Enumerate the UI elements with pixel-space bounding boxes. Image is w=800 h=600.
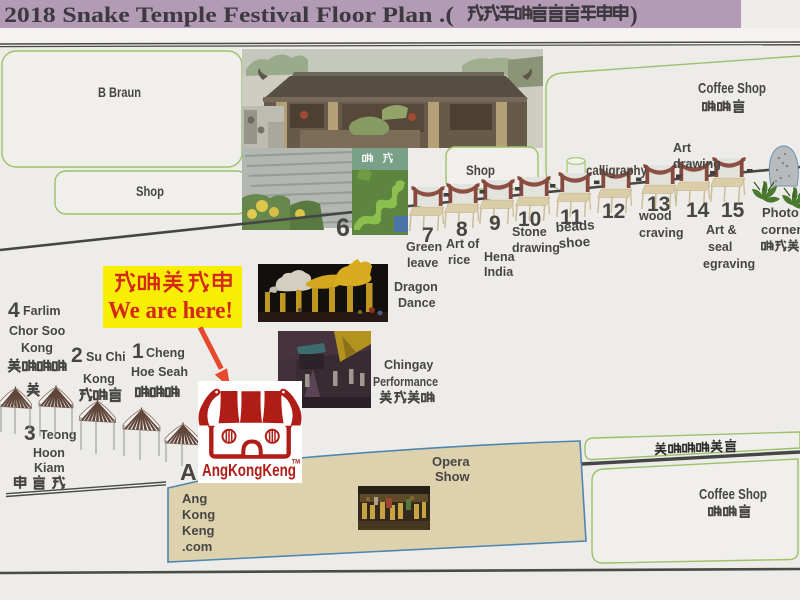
svg-text:Dance: Dance [398,296,436,310]
svg-text:Kong: Kong [83,372,115,386]
svg-text:.com: .com [182,539,212,554]
svg-text:Su Chi: Su Chi [86,350,126,364]
svg-text:TM: TM [292,460,301,466]
svg-text:2: 2 [71,344,83,367]
svg-text:Hena: Hena [484,250,516,264]
svg-text:Shop: Shop [136,184,164,199]
svg-text:Performance: Performance [373,375,438,389]
svg-text:Keng: Keng [182,523,215,538]
svg-text:B Braun: B Braun [98,85,141,100]
svg-text:corner: corner [761,222,800,237]
svg-text:Shop: Shop [466,163,495,178]
svg-text:12: 12 [602,200,625,223]
svg-text:Cheng: Cheng [146,346,185,360]
svg-text:Ang: Ang [182,491,207,506]
svg-text:Show: Show [435,469,471,484]
svg-text:Stone: Stone [512,225,547,239]
svg-text:drawing: drawing [673,157,721,171]
svg-text:Hoon: Hoon [33,446,65,460]
svg-text:Dragon: Dragon [394,280,438,294]
svg-text:seal: seal [708,240,732,254]
svg-text:AngKongKeng: AngKongKeng [202,460,296,480]
svg-text:9: 9 [489,212,501,235]
svg-text:4: 4 [8,299,20,322]
svg-text:beads: beads [555,217,595,235]
svg-text:Green: Green [406,240,442,254]
svg-text:Coffee Shop: Coffee Shop [699,486,767,503]
svg-text:Art: Art [673,141,692,155]
svg-text:14: 14 [686,199,710,222]
svg-text:Chor Soo: Chor Soo [9,324,66,338]
svg-text:1: 1 [132,340,144,363]
svg-text:2018 Snake Temple Festival Flo: 2018 Snake Temple Festival Floor Plan .( [4,2,454,27]
svg-text:Farlim: Farlim [23,304,61,318]
svg-text:drawing: drawing [512,241,560,255]
svg-text:A: A [180,459,197,485]
svg-text:rice: rice [448,253,470,267]
svg-text:calligraphy: calligraphy [586,163,647,178]
svg-text:egraving: egraving [703,257,755,271]
svg-text:Art of: Art of [446,237,480,251]
svg-text:Coffee Shop: Coffee Shop [698,80,766,97]
svg-text:India: India [484,265,514,279]
svg-text:Photo: Photo [762,205,799,220]
svg-text:Art &: Art & [706,223,737,237]
svg-text:We are here!: We are here! [108,298,233,324]
svg-text:Hoe Seah: Hoe Seah [131,365,188,379]
svg-text:6: 6 [336,214,350,242]
svg-text:): ) [630,2,638,27]
svg-text:shoe: shoe [558,234,591,251]
svg-text:Kong: Kong [21,341,53,355]
svg-text:leave: leave [407,256,438,270]
svg-text:Kiam: Kiam [34,461,65,475]
svg-text:Teong: Teong [40,428,77,442]
svg-text:Chingay: Chingay [384,358,433,372]
svg-text:Kong: Kong [182,507,215,522]
svg-text:Opera: Opera [432,454,470,469]
svg-text:craving: craving [639,226,683,240]
svg-text:15: 15 [721,199,745,222]
svg-text:wood: wood [638,209,672,223]
